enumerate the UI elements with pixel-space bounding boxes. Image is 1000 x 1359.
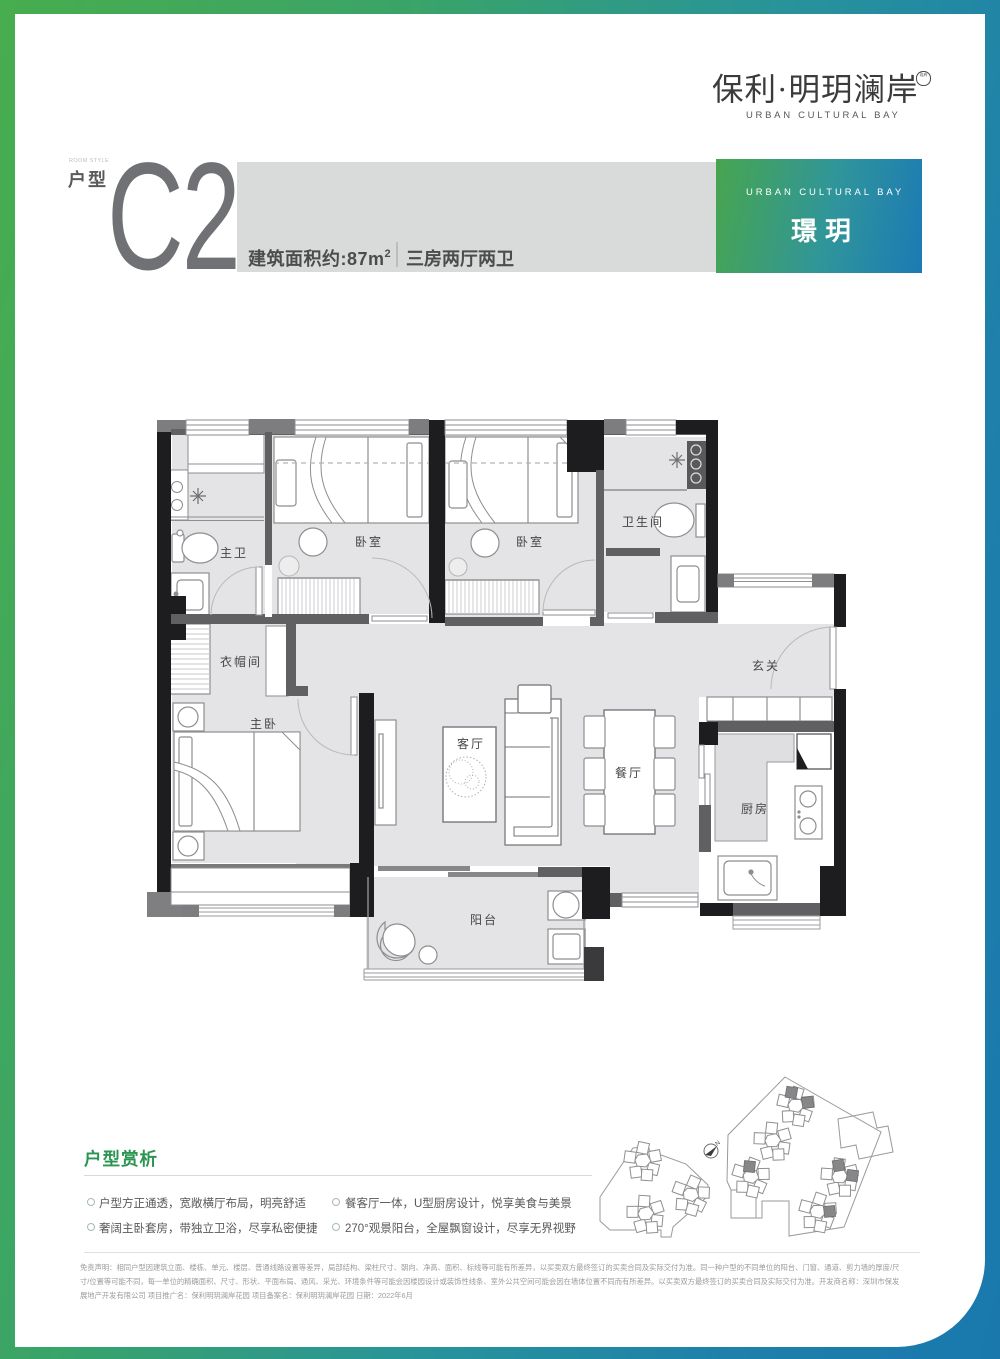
svg-text:卫生间: 卫生间 [622, 515, 664, 529]
svg-text:主卧: 主卧 [250, 717, 278, 731]
svg-text:衣帽间: 衣帽间 [220, 654, 262, 669]
svg-text:卧室: 卧室 [355, 534, 383, 549]
svg-text:餐厅: 餐厅 [615, 765, 643, 780]
svg-text:厨房: 厨房 [741, 801, 769, 816]
svg-text:阳台: 阳台 [470, 912, 498, 927]
svg-text:玄关: 玄关 [752, 658, 780, 673]
svg-text:主卫: 主卫 [220, 546, 248, 560]
svg-text:客厅: 客厅 [457, 736, 485, 751]
svg-text:卧室: 卧室 [516, 534, 544, 549]
